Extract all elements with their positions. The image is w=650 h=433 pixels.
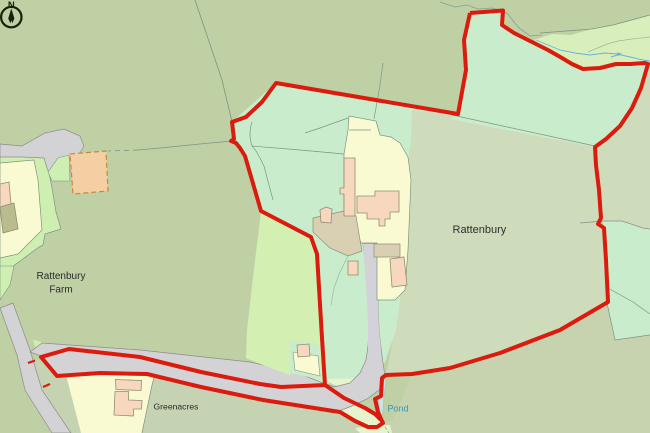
- svg-text:Rattenbury: Rattenbury: [453, 224, 507, 236]
- svg-text:Greenacres: Greenacres: [154, 402, 199, 412]
- svg-text:Pond: Pond: [388, 404, 409, 414]
- svg-text:Farm: Farm: [49, 285, 72, 296]
- svg-text:Rattenbury: Rattenbury: [37, 271, 86, 282]
- svg-text:N: N: [8, 0, 15, 11]
